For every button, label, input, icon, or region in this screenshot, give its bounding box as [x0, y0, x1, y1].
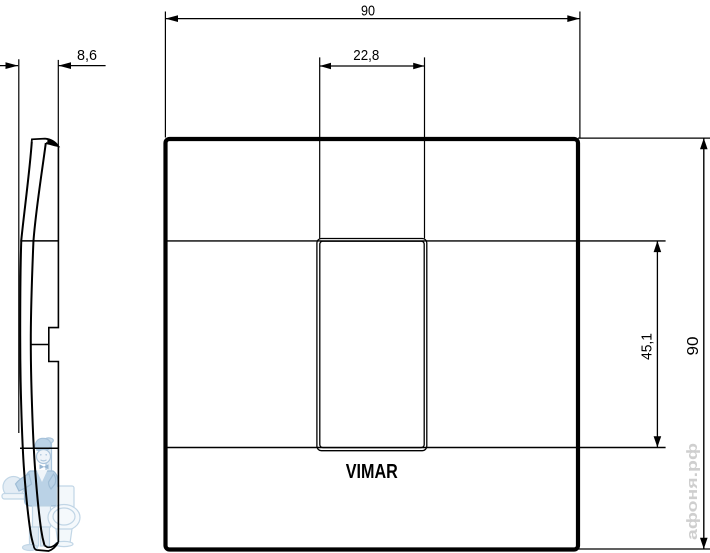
svg-text:90: 90 — [361, 2, 375, 19]
svg-text:22,8: 22,8 — [353, 47, 379, 64]
svg-text:афоня.рф: афоня.рф — [685, 443, 701, 540]
svg-text:90: 90 — [685, 336, 702, 355]
svg-text:VIMAR: VIMAR — [346, 461, 398, 483]
svg-text:8,6: 8,6 — [77, 47, 97, 64]
svg-text:45,1: 45,1 — [639, 333, 656, 360]
